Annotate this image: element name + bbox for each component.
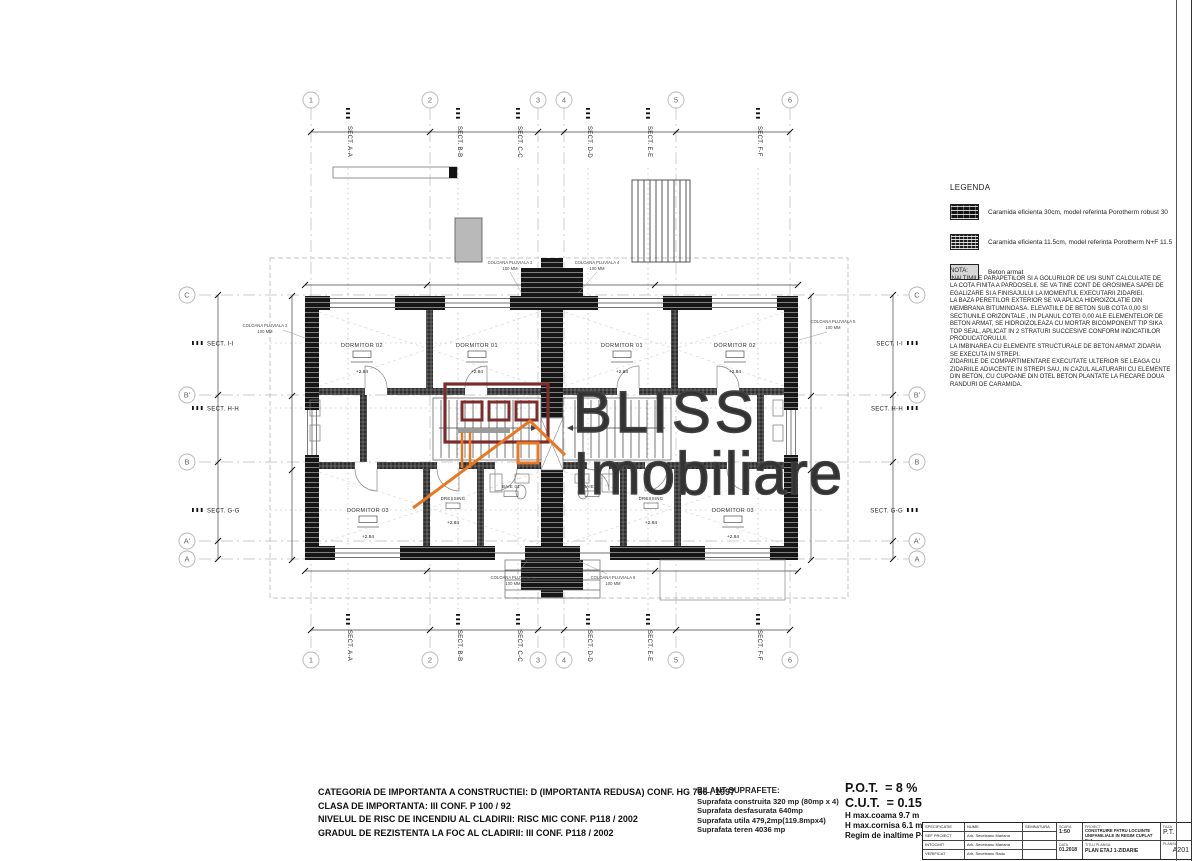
- grid-col-label: 1: [309, 96, 313, 105]
- tb-scale-cell: SCARA 1:50: [1057, 823, 1083, 841]
- compliance-line: NIVELUL DE RISC DE INCENDIU AL CLADIRII:…: [318, 813, 735, 827]
- svg-text:+2.84: +2.84: [616, 369, 628, 375]
- compliance-line: CATEGORIA DE IMPORTANTA A CONSTRUCTIEI: …: [318, 786, 735, 800]
- tb-sheet-cell: TITLU PLANSA: PLAN ETAJ 1-ZIDARIE: [1083, 841, 1161, 859]
- tb-signature-cell: [1023, 841, 1057, 850]
- areas-block: BILANT SUPRAFETE: Suprafata construita 3…: [697, 786, 839, 835]
- grid-row-label: B': [184, 391, 191, 400]
- section-label: SECT. B-B: [456, 630, 462, 661]
- svg-text:100 MM: 100 MM: [505, 581, 521, 586]
- tb-project-cell: PROIECT: CONSTRUIRE PATRU LOCUINTE UNIFA…: [1083, 823, 1161, 841]
- tb-signature-header: SEMNATURA: [1023, 823, 1057, 832]
- pluvial-label: COLOANA PLUVIALA 3: [488, 260, 533, 265]
- section-label: SECT. F-F: [756, 126, 762, 157]
- tb-name: Arh. Seceleanu Mariana: [965, 841, 1023, 850]
- section-label: SECT. D-D: [586, 126, 592, 158]
- pluvial-label: COLOANA PLUVIALA 4: [575, 260, 620, 265]
- areas-line: Suprafata utila 479,2mp(119.8mpx4): [697, 816, 839, 826]
- brick30-swatch: [950, 204, 979, 220]
- room-label: DORMITOR 03: [712, 508, 754, 514]
- grid-row-label: A: [914, 555, 919, 564]
- svg-text:100 MM: 100 MM: [257, 329, 273, 334]
- sheet-border-outer: [1191, 0, 1192, 861]
- grid-row-label: B: [184, 458, 189, 467]
- nota-title: NOTA:: [950, 268, 1175, 276]
- section-label: SECT. A-A: [346, 630, 352, 661]
- tb-sheet-title: PLAN ETAJ 1-ZIDARIE: [1085, 848, 1158, 854]
- tb-name: Arh. Seceleanu Mariana: [965, 832, 1023, 841]
- grid-col-label: 6: [788, 656, 792, 665]
- chimney: [455, 218, 482, 262]
- section-label: SECT. C-C: [516, 126, 522, 158]
- legend-item: Caramida eficienta 11.5cm, model referin…: [950, 234, 1180, 250]
- grid-col-label: 3: [536, 656, 540, 665]
- grid-row-label: C: [914, 291, 920, 300]
- section-label: SECT. I-I: [207, 342, 234, 348]
- tb-spec-header: SPECIFICATIE: [923, 823, 965, 832]
- svg-text:+2.84: +2.84: [729, 369, 741, 375]
- pergola: [632, 180, 690, 262]
- compliance-line: GRADUL DE REZISTENTA LA FOC AL CLADIRII:…: [318, 827, 735, 841]
- tb-role: SEF PROIECT: [923, 832, 965, 841]
- party-wall: [541, 258, 563, 418]
- indicator-line: Regim de inaltime P+1: [845, 831, 930, 841]
- tb-role: VERIFICAT: [923, 850, 965, 859]
- areas-line: Suprafata construita 320 mp (80mp x 4): [697, 797, 839, 807]
- floor-plan-svg: 1 2 3 4 5 6 1 2 3 4 5 6 C B' B A' A C B'…: [165, 80, 955, 680]
- svg-text:100 MM: 100 MM: [502, 266, 518, 271]
- pluvial-label: COLOANA PLUVIALA 5: [811, 319, 856, 324]
- room-label: DORMITOR 02: [341, 343, 383, 349]
- watermark-text-line2: Imobiliare: [573, 440, 843, 507]
- room-label: DORMITOR 02: [714, 343, 756, 349]
- compliance-block: CATEGORIA DE IMPORTANTA A CONSTRUCTIEI: …: [318, 786, 735, 840]
- grid-row-label: A': [184, 537, 191, 546]
- room-label: DORMITOR 01: [601, 343, 643, 349]
- drawing-sheet: 1 2 3 4 5 6 1 2 3 4 5 6 C B' B A' A C B'…: [0, 0, 1200, 861]
- grid-col-label: 1: [309, 656, 313, 665]
- section-label: SECT. B-B: [456, 126, 462, 157]
- section-label: SECT. G-G: [207, 509, 240, 515]
- room-label: DORMITOR 03: [347, 508, 389, 514]
- pluvial-label: COLOANA PLUVIALA 1: [491, 575, 536, 580]
- grid-col-label: 5: [674, 656, 678, 665]
- indicators-block: P.O.T. = 8 % C.U.T. = 0.15 H max.coama 9…: [845, 781, 930, 840]
- brick115-swatch: [950, 234, 979, 250]
- areas-line: Suprafata desfasurata 640mp: [697, 806, 839, 816]
- legend-title: LEGENDA: [950, 183, 1180, 192]
- section-label: SECT. G-G: [870, 509, 903, 515]
- room-label: DORMITOR 01: [456, 343, 498, 349]
- nota-block: NOTA: INALTIMILE PARAPETILOR SI A GOLURI…: [950, 268, 1175, 390]
- svg-text:+2.84: +2.84: [362, 534, 374, 540]
- indicator-line: H max.coama 9.7 m: [845, 811, 930, 821]
- legend-item: Caramida eficienta 30cm, model referinta…: [950, 204, 1180, 220]
- tb-signature-cell: [1023, 850, 1057, 859]
- grid-row-label: A': [914, 537, 921, 546]
- title-block: SPECIFICATIE SEF PROIECT INTOCMIT VERIFI…: [922, 822, 1192, 860]
- grid-col-label: 4: [562, 656, 566, 665]
- grid-col-label: 5: [674, 96, 678, 105]
- grid-row-label: C: [184, 291, 190, 300]
- section-label: SECT. E-E: [646, 126, 652, 157]
- grid-col-label: 2: [428, 96, 432, 105]
- grid-col-label: 3: [536, 96, 540, 105]
- sheet-border-inner: [1176, 0, 1177, 861]
- svg-text:100 MM: 100 MM: [605, 581, 621, 586]
- svg-text:+2.84: +2.84: [471, 369, 483, 375]
- tb-scale-value: 1:50: [1059, 829, 1080, 835]
- grid-col-label: 2: [428, 656, 432, 665]
- tb-role: INTOCMIT: [923, 841, 965, 850]
- roof-attachments: [333, 167, 690, 262]
- svg-text:+2.84: +2.84: [356, 369, 368, 375]
- section-label: SECT. H-H: [207, 407, 239, 413]
- watermark-text-line1: BLISS: [573, 380, 757, 445]
- svg-text:+2.84: +2.84: [645, 520, 657, 526]
- pot-value: P.O.T. = 8 %: [845, 781, 930, 796]
- room-label: DRESSING: [441, 496, 466, 501]
- section-label: SECT. F-F: [756, 630, 762, 661]
- grid-col-label: 4: [562, 96, 566, 105]
- grid-row-label: B: [914, 458, 919, 467]
- areas-line: Suprafata teren 4036 mp: [697, 825, 839, 835]
- pluvial-label: COLOANA PLUVIALA 2: [243, 323, 288, 328]
- compliance-line: CLASA DE IMPORTANTA: III CONF. P 100 / 9…: [318, 800, 735, 814]
- grid-row-label: A: [184, 555, 189, 564]
- svg-text:+2.84: +2.84: [447, 520, 459, 526]
- pluvial-label: COLOANA PLUVIALA 6: [591, 575, 636, 580]
- svg-text:100 MM: 100 MM: [825, 325, 841, 330]
- cut-value: C.U.T. = 0.15: [845, 796, 930, 811]
- svg-text:100 MM: 100 MM: [589, 266, 605, 271]
- section-label: SECT. E-E: [646, 630, 652, 661]
- indicator-line: H max.cornisa 6.1 m: [845, 821, 930, 831]
- tb-name: Arh. Seceleanu Radu: [965, 850, 1023, 859]
- section-label: SECT. I-I: [876, 342, 903, 348]
- areas-title: BILANT SUPRAFETE:: [697, 786, 839, 796]
- section-label: SECT. H-H: [871, 407, 903, 413]
- grid-col-label: 6: [788, 96, 792, 105]
- svg-text:+2.84: +2.84: [727, 534, 739, 540]
- tb-date-value: 01.2018: [1059, 847, 1080, 853]
- section-label: SECT. D-D: [586, 630, 592, 662]
- section-label: SECT. A-A: [346, 126, 352, 157]
- tb-signature-cell: [1023, 832, 1057, 841]
- tb-name-header: NUME: [965, 823, 1023, 832]
- room-label: BAIE 01: [502, 484, 520, 489]
- tb-date-cell: DATA 01.2018: [1057, 841, 1083, 859]
- grid-row-label: B': [914, 391, 921, 400]
- section-label: SECT. C-C: [516, 630, 522, 662]
